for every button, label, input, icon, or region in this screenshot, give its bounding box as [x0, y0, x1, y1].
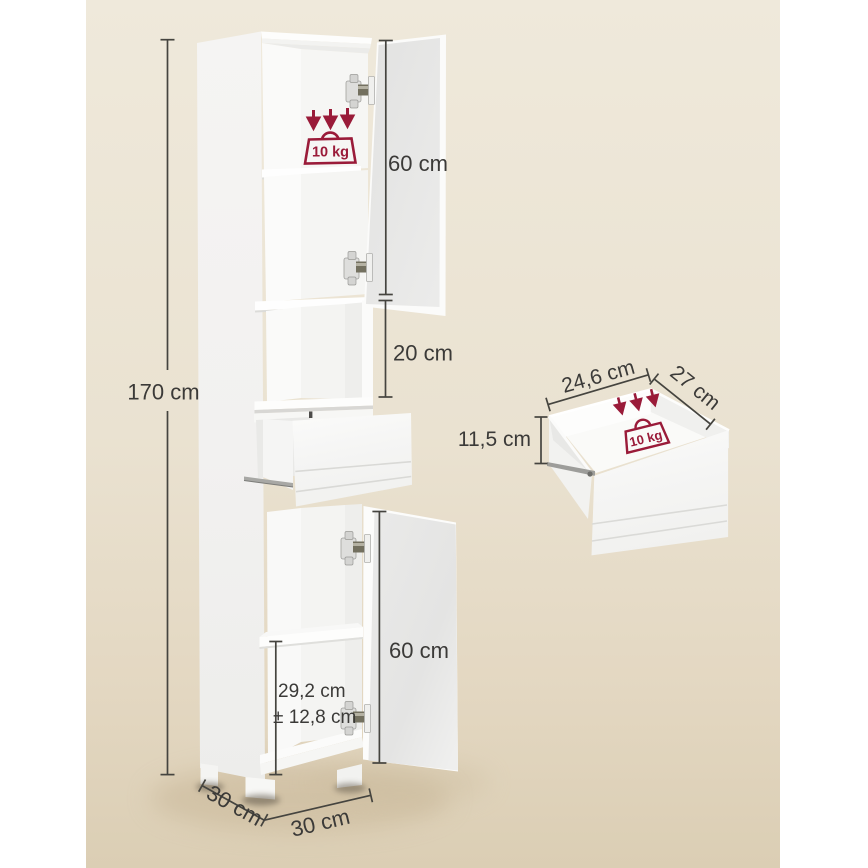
svg-text:60 cm: 60 cm	[388, 151, 448, 176]
svg-text:11,5 cm: 11,5 cm	[458, 428, 531, 451]
svg-text:60 cm: 60 cm	[389, 638, 449, 663]
svg-text:170 cm: 170 cm	[127, 380, 199, 405]
svg-text:10 kg: 10 kg	[312, 145, 349, 161]
svg-text:± 12,8 cm: ± 12,8 cm	[273, 707, 356, 728]
svg-text:29,2 cm: 29,2 cm	[278, 681, 346, 702]
svg-text:20 cm: 20 cm	[393, 341, 453, 366]
